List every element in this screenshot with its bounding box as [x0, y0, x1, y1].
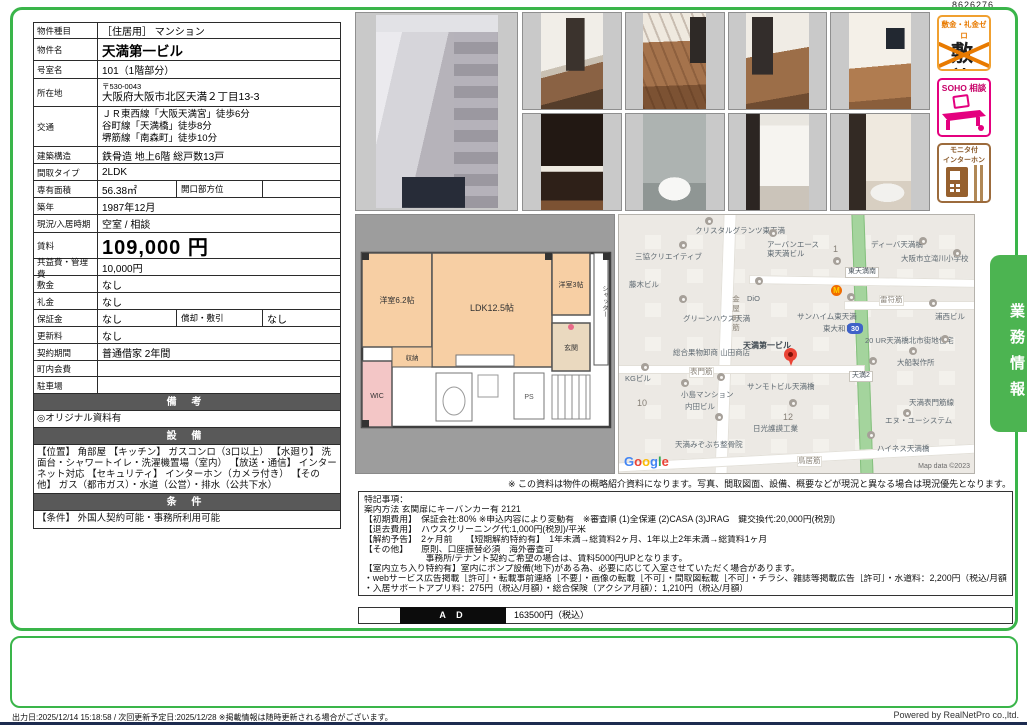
spec-row: 契約期間普通借家 2年間	[34, 344, 340, 361]
spec-label: 礼金	[34, 293, 98, 309]
map-pin-icon	[909, 347, 917, 355]
google-logo-letter: g	[650, 454, 658, 469]
spec-label: 駐車場	[34, 377, 98, 393]
notes-line: 【退去費用】 ハウスクリーニング代:1,000円(税別)/平米	[364, 525, 1007, 535]
photo-image-toilet	[643, 114, 706, 210]
property-sheet: 8626276 物件種目［住居用］ マンション物件名天満第一ビル号室名101（1…	[0, 0, 1027, 726]
photo-image-hallway-entrance	[541, 13, 604, 109]
street-label: 金屋町筋	[731, 295, 740, 333]
room-label-ldk: LDK12.5帖	[470, 302, 514, 313]
spec-label: 賃料	[34, 233, 98, 258]
room-label-east: 洋室3帖	[559, 280, 584, 289]
photo-bedroom-b	[830, 12, 930, 110]
notes-line: 案内方法 玄関扉にキーバンカー有 2121	[364, 505, 1007, 515]
photo-image-living-dining	[643, 13, 706, 109]
map-place-label: 12	[783, 413, 793, 422]
badge-monitor-intercom: モニタ付 インターホン	[937, 143, 991, 203]
map-pin-icon	[681, 379, 689, 387]
map-pin-icon	[833, 257, 841, 265]
spec-label: 物件種目	[34, 23, 98, 38]
street-label: 鳥居筋	[797, 456, 822, 467]
spec-row: 物件種目［住居用］ マンション	[34, 23, 340, 39]
shiki-rei-crossed-icon: 敷礼	[939, 41, 989, 71]
spec-row: 間取タイプ2LDK	[34, 164, 340, 181]
badge-title-line1: モニタ付	[939, 147, 989, 155]
map-pin-icon	[919, 237, 927, 245]
photo-bedroom-a	[728, 12, 828, 110]
room-label-ps: PS	[524, 394, 534, 401]
disclaimer-text: ※ この資料は物件の概略紹介資料になります。写真、間取図面、設備、概要などが現況…	[508, 477, 1011, 490]
map-road	[844, 301, 975, 310]
map-place-label: KGビル	[625, 375, 651, 384]
street-label: 雷符筋	[879, 295, 904, 306]
spec-row: 礼金なし	[34, 293, 340, 310]
map-pin-icon	[869, 357, 877, 365]
spec-label: 交通	[34, 107, 98, 146]
map-place-label: 1	[833, 245, 838, 254]
intercom-monitor-icon	[942, 165, 986, 201]
google-logo-letter: o	[634, 454, 642, 469]
spec-value: 109,000 円	[98, 233, 340, 258]
spec-value-line: 大阪府大阪市北区天満２丁目13-3	[102, 91, 260, 103]
spec-row: 共益費・管理費10,000円	[34, 259, 340, 276]
room-label-storage: 収納	[406, 353, 419, 362]
photo-kitchen	[522, 113, 622, 211]
spec-label: 専有面積	[34, 181, 98, 197]
spec-label: 契約期間	[34, 344, 98, 360]
spec-value-line: 堺筋線「南森町」徒歩10分	[102, 133, 217, 145]
badge-no-deposit-no-key-money: 敷金・礼金ゼロ 敷礼	[937, 15, 991, 71]
spec-row: 所在地〒530-0043大阪府大阪市北区天満２丁目13-3	[34, 79, 340, 107]
powered-by: Powered by RealNetPro co.,ltd.	[893, 710, 1019, 720]
section-header: 設 備	[34, 428, 340, 445]
map-place-label: 藤木ビル	[629, 281, 659, 290]
photo-building-exterior	[355, 12, 518, 211]
map-pin-icon	[903, 409, 911, 417]
spec-value: ＪＲ東西線「大阪天満宮」徒歩6分谷町線「天満橋」徒歩8分堺筋線「南森町」徒歩10…	[98, 107, 340, 146]
map-place-label: 天満表門筋線	[909, 399, 954, 408]
spec-row: 建築構造鉄骨造 地上6階 総戸数13戸	[34, 147, 340, 164]
spec-value	[98, 361, 340, 376]
map-pin-icon	[715, 413, 723, 421]
special-notes-box: 特記事項：案内方法 玄関扉にキーバンカー有 2121【初期費用】 保証会社:80…	[358, 491, 1013, 596]
map-place-label: 天満みぞぶち整骨院	[675, 441, 743, 450]
map-pin-icon	[705, 217, 713, 225]
map-place-label: 内田ビル	[685, 403, 715, 412]
spec-row: 物件名天満第一ビル	[34, 39, 340, 61]
location-map: クリスタルグランツ東天満アーバンエース 東天満ビル1ディーバ天満橋大阪市立滝川小…	[618, 214, 975, 474]
map-pin-icon	[941, 335, 949, 343]
restaurant-icon: M	[831, 285, 842, 296]
photo-image-bedroom-a	[746, 13, 809, 109]
badge-title: SOHO 相談	[939, 82, 989, 94]
spec-value: 鉄骨造 地上6階 総戸数13戸	[98, 147, 340, 163]
route-shield-30: 30	[847, 323, 863, 334]
spec-row: 敷金なし	[34, 276, 340, 293]
spec-label: 所在地	[34, 79, 98, 106]
spec-row: 専有面積56.38㎡開口部方位	[34, 181, 340, 198]
photo-hallway-entrance	[522, 12, 622, 110]
photo-washroom	[728, 113, 828, 211]
spec-value: 56.38㎡	[98, 181, 176, 197]
photo-image-bathroom	[849, 114, 912, 210]
spec-value: 1987年12月	[98, 198, 340, 214]
tab-business-info[interactable]: 業務情報	[990, 255, 1027, 432]
map-place-label: 大船製作所	[897, 359, 935, 368]
notes-line: 【その他】 原則、口座振替必須 海外審査可	[364, 545, 1007, 555]
map-pin-icon	[717, 373, 725, 381]
section-content: 【条件】 外国人契約可能・事務所利用可能	[34, 511, 340, 528]
spec-label: 敷金	[34, 276, 98, 292]
spec-value: なし	[98, 276, 340, 292]
map-road	[618, 365, 865, 374]
target-location-pin-icon	[784, 348, 797, 361]
spec-value: 空室 / 相談	[98, 215, 340, 232]
notes-line: 事務所/テナント契約ご希望の場合は、賃料5000円UPとなります。	[364, 554, 1007, 564]
spec-value: 2LDK	[98, 164, 340, 180]
map-place-label: DiO	[747, 295, 760, 304]
photo-image-bedroom-b	[849, 13, 912, 109]
map-pin-icon	[867, 431, 875, 439]
map-place-label: 10	[637, 399, 647, 408]
spec-subvalue: なし	[262, 310, 340, 326]
spec-label: 町内会費	[34, 361, 98, 376]
building-exterior-image	[376, 15, 498, 208]
google-logo-letter: o	[642, 454, 650, 469]
room-label-wic: WIC	[370, 393, 384, 400]
map-copyright: Map data ©2023	[918, 463, 970, 470]
spec-label: 保証金	[34, 310, 98, 326]
spec-sublabel: 開口部方位	[176, 181, 262, 197]
notes-line: ・入居サポートアプリ料：275円（税込/月額）・総合保険（アクシア月額）：1,2…	[364, 584, 1007, 594]
spec-value: なし	[98, 310, 176, 326]
photo-bathroom	[830, 113, 930, 211]
map-place-label: ハイネス天満橋	[877, 445, 929, 454]
spec-row: 保証金なし償却・敷引なし	[34, 310, 340, 327]
ad-row-spacer	[358, 607, 400, 624]
spec-row: 築年1987年12月	[34, 198, 340, 215]
badge-title: 敷金・礼金ゼロ	[939, 19, 989, 41]
section-header: 備 考	[34, 394, 340, 411]
map-pin-icon	[679, 241, 687, 249]
spec-label: 現況/入居時期	[34, 215, 98, 232]
spec-value: 普通借家 2年間	[98, 344, 340, 360]
ad-value: 163500円（税込）	[506, 607, 1013, 624]
spec-label: 築年	[34, 198, 98, 214]
map-place-label: 東天満南	[845, 267, 879, 278]
spec-value: 〒530-0043大阪府大阪市北区天満２丁目13-3	[98, 79, 340, 106]
map-place-label: エヌ・ユーシステム	[885, 417, 952, 426]
spec-value: なし	[98, 327, 340, 343]
badge-soho-consult: SOHO 相談	[937, 78, 991, 137]
google-logo-letter: e	[662, 454, 669, 469]
section-content: 【位置】 角部屋 【キッチン】 ガスコンロ（3口以上） 【水廻り】 洗面台・シャ…	[34, 445, 340, 494]
map-place-label: 浦西ビル	[935, 313, 965, 322]
photo-image-kitchen	[541, 114, 604, 210]
spec-row: 更新料なし	[34, 327, 340, 344]
section-header: 条 件	[34, 494, 340, 511]
map-place-label: サンモトビル天満橋	[747, 383, 815, 392]
photo-grid	[522, 12, 930, 211]
notes-line: 【初期費用】 保証会社:80% ※申込内容により変動有 ※審査順 (1)全保連 …	[364, 515, 1007, 525]
street-label: 表門筋	[689, 367, 714, 378]
rei-kanji: 礼	[951, 67, 977, 71]
spec-row: 町内会費	[34, 361, 340, 377]
spec-row: 駐車場	[34, 377, 340, 394]
spec-value: なし	[98, 293, 340, 309]
spec-value: 天満第一ビル	[98, 39, 340, 60]
map-pin-icon	[755, 277, 763, 285]
map-place-label: 小島マンション	[681, 391, 734, 400]
spec-row: 交通ＪＲ東西線「大阪天満宮」徒歩6分谷町線「天満橋」徒歩8分堺筋線「南森町」徒歩…	[34, 107, 340, 147]
spec-value	[98, 377, 340, 393]
map-place-label: 日光護謨工業	[753, 425, 798, 434]
spec-label: 物件名	[34, 39, 98, 60]
photo-image-washroom	[746, 114, 809, 210]
spec-value-line: 〒530-0043	[102, 82, 141, 91]
map-pin-icon	[929, 299, 937, 307]
map-place-label: 天満2	[849, 371, 873, 382]
spec-label: 更新料	[34, 327, 98, 343]
map-pin-icon	[789, 399, 797, 407]
map-pin-icon	[847, 293, 855, 301]
floor-plan: 洋室6.2帖 LDK12.5帖 洋室3帖 WIC 収納 玄関 PS シャッター	[355, 214, 615, 474]
bottom-bar	[0, 722, 1027, 725]
map-place-label: 天満第一ビル	[743, 342, 791, 351]
ad-label: A D	[400, 607, 506, 624]
map-place-label: サンハイム東天満	[797, 313, 857, 322]
notes-line: 【室内立ち入り特約有】室内にポンプ設備(地下)がある為、必要に応じて入室させてい…	[364, 564, 1007, 574]
map-place-label: アーバンエース 東天満ビル	[767, 241, 819, 258]
property-spec-table: 物件種目［住居用］ マンション物件名天満第一ビル号室名101（1階部分）所在地〒…	[33, 22, 341, 529]
spec-subvalue	[262, 181, 340, 197]
spec-row: 号室名101（1階部分）	[34, 61, 340, 79]
floor-plan-drawing: 洋室6.2帖 LDK12.5帖 洋室3帖 WIC 収納 玄関 PS シャッター	[356, 215, 614, 473]
map-place-label: ディーバ天満橋	[871, 241, 923, 250]
google-logo-letter: G	[624, 454, 634, 469]
map-pin-icon	[953, 249, 961, 257]
spec-value: ［住居用］ マンション	[98, 23, 340, 38]
badge-title-line2: インターホン	[939, 157, 989, 165]
notes-line: 特記事項：	[364, 495, 1007, 505]
photo-toilet	[625, 113, 725, 211]
photo-living-dining	[625, 12, 725, 110]
google-logo: Google	[624, 454, 669, 469]
spec-label: 間取タイプ	[34, 164, 98, 180]
map-pin-icon	[641, 363, 649, 371]
spec-value-line: 谷町線「天満橋」徒歩8分	[102, 121, 212, 133]
spec-sublabel: 償却・敷引	[176, 310, 262, 326]
map-place-label: 総合果物卸商 山田商店	[673, 349, 750, 358]
desk-workspace-icon	[940, 94, 988, 132]
spec-value: 101（1階部分）	[98, 61, 340, 78]
notes-line: ・webサービス広告掲載［許可］・転載事前連絡［不要］・画像の転載［不可］・間取…	[364, 574, 1007, 584]
spec-label: 建築構造	[34, 147, 98, 163]
spec-label: 号室名	[34, 61, 98, 78]
map-pin-icon	[769, 229, 777, 237]
spec-value-line: ＪＲ東西線「大阪天満宮」徒歩6分	[102, 109, 250, 121]
section-content: ◎オリジナル資料有	[34, 411, 340, 428]
room-label-west: 洋室6.2帖	[379, 295, 414, 305]
notes-line: 【解約予告】 2ヶ月前 【短期解約特約有】 1年未満→総賃料2ヶ月、1年以上2年…	[364, 535, 1007, 545]
spec-label: 共益費・管理費	[34, 259, 98, 275]
room-label-entrance: 玄関	[564, 343, 578, 352]
spec-value: 10,000円	[98, 259, 340, 275]
map-place-label: 三協クリエイティブ	[635, 253, 702, 262]
footer-company-box: stride Inc. 大阪府知事免許(1)第63510号 株式会社ストライド …	[10, 636, 1018, 708]
map-pin-icon	[679, 295, 687, 303]
